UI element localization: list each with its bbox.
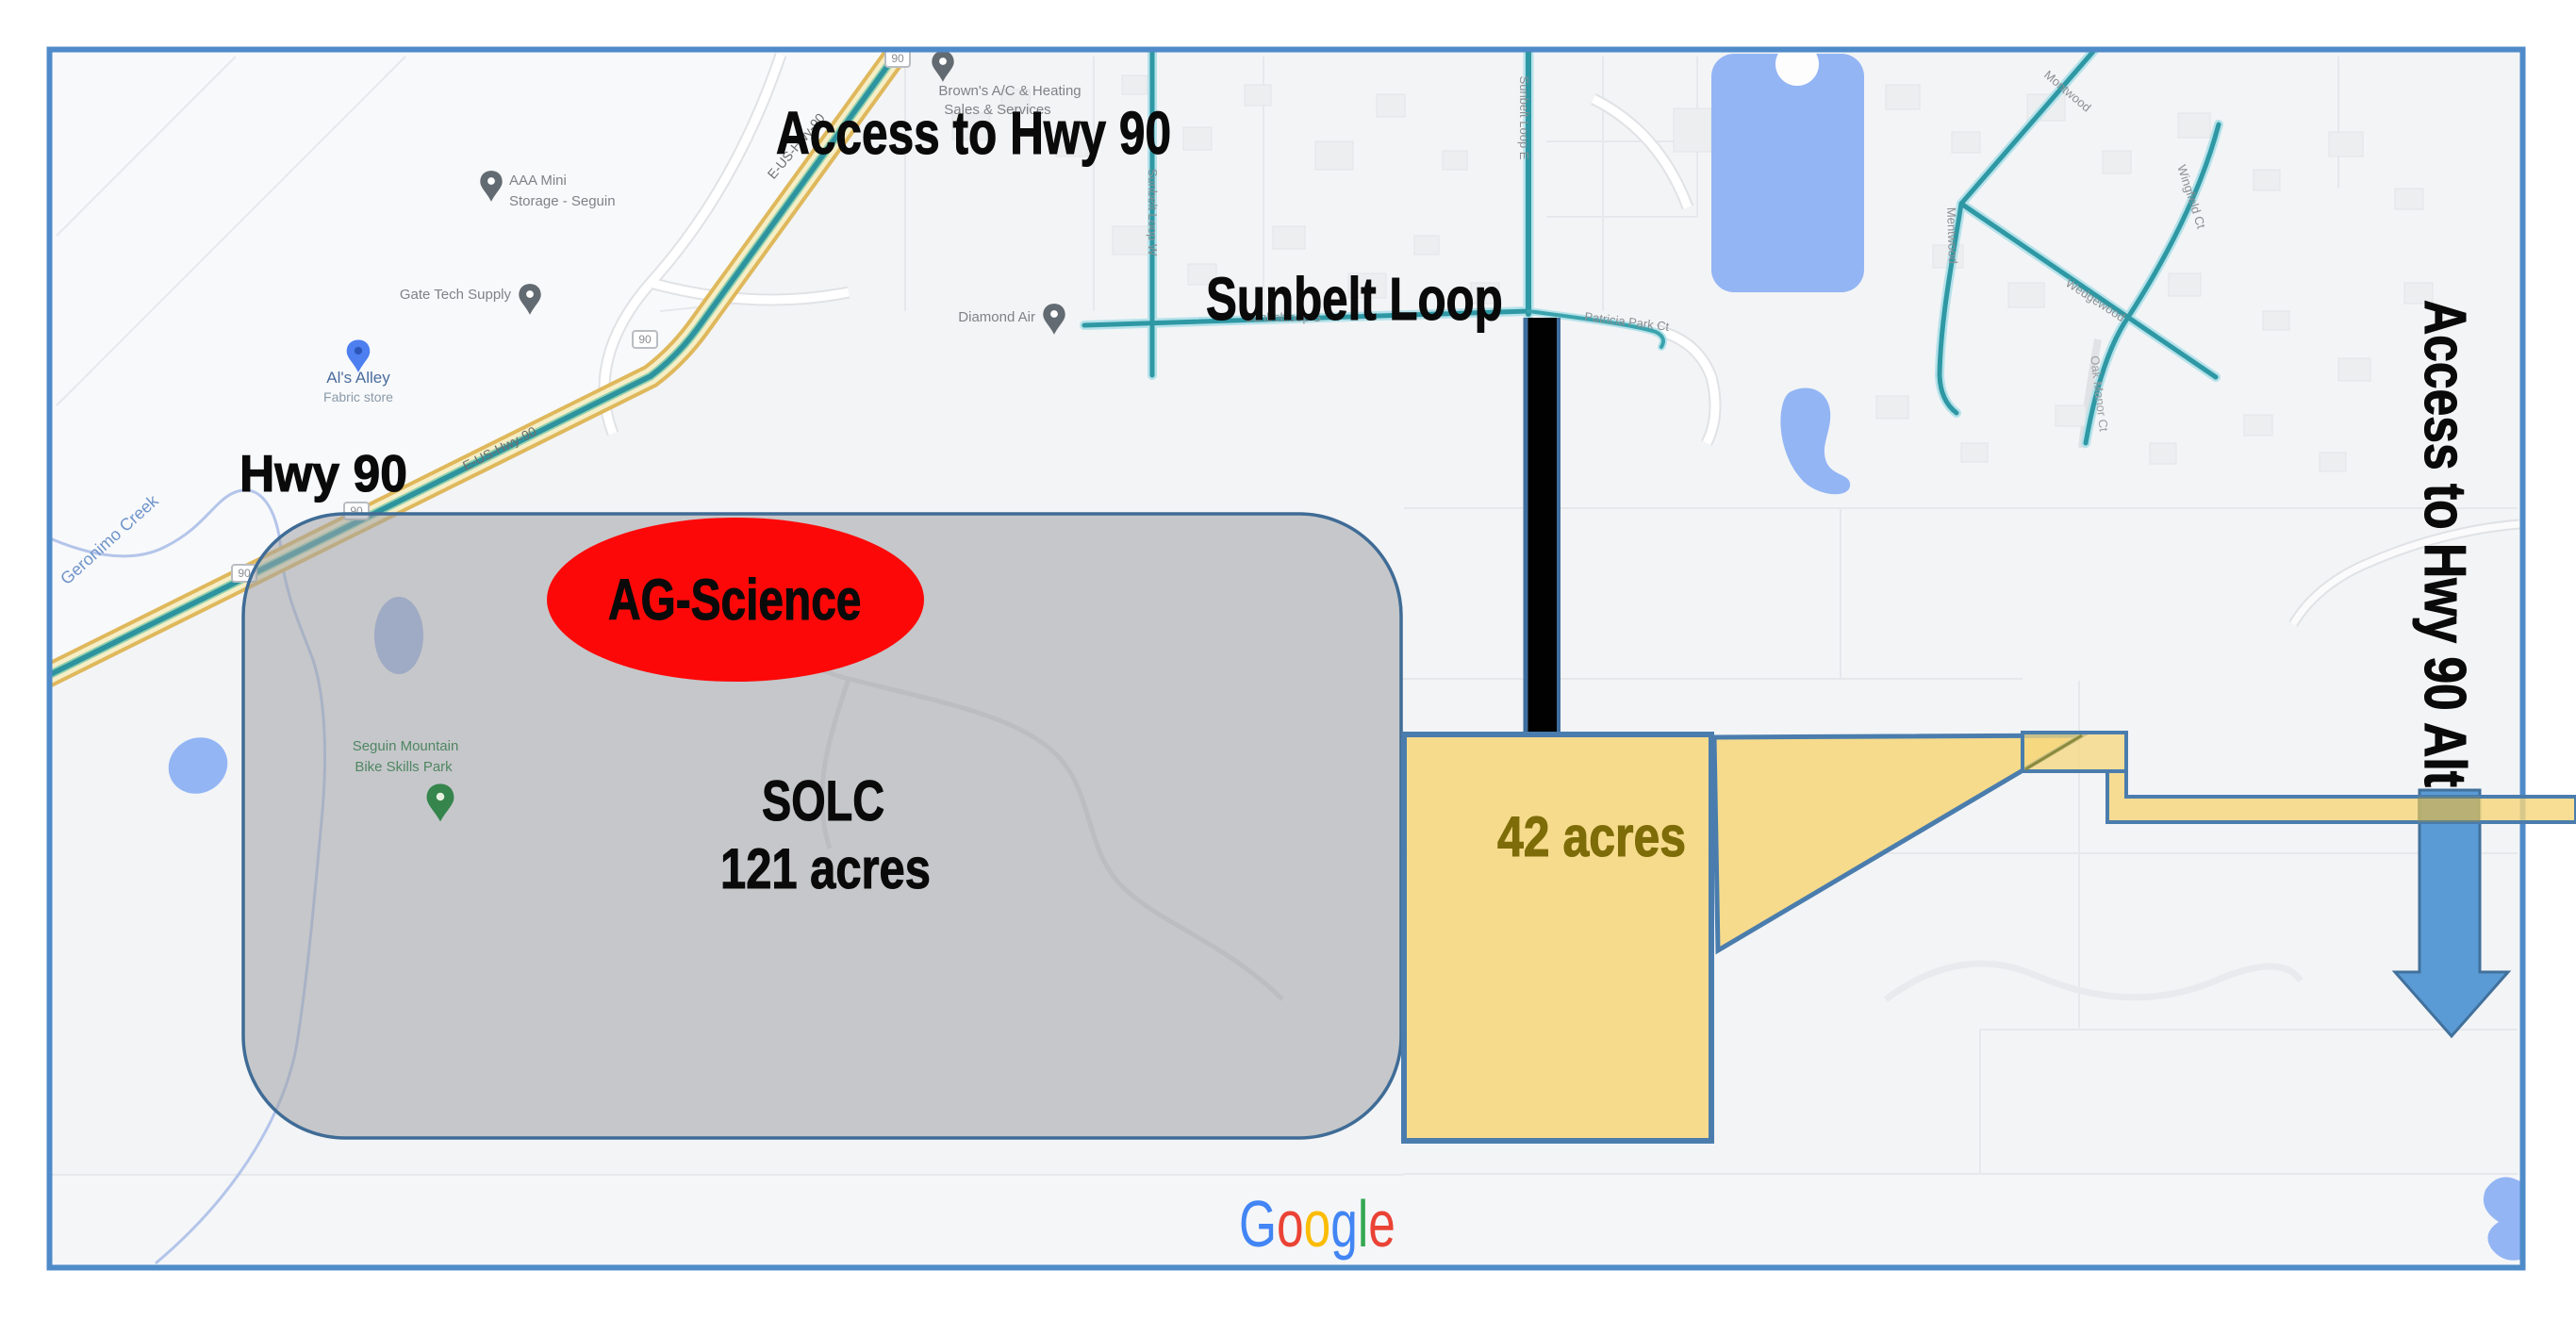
svg-text:Bike Skills Park: Bike Skills Park (355, 759, 453, 775)
svg-text:Seguin Mountain: Seguin Mountain (353, 738, 459, 754)
svg-text:Gate Tech Supply: Gate Tech Supply (400, 287, 512, 303)
svg-text:AAA Mini: AAA Mini (509, 173, 567, 189)
svg-text:Sunbelt Loop W: Sunbelt Loop W (1146, 169, 1160, 256)
svg-text:Brown's A/C & Heating: Brown's A/C & Heating (938, 83, 1081, 99)
svg-text:90: 90 (891, 52, 904, 65)
svg-text:Sunbelt Loop: Sunbelt Loop (1206, 266, 1503, 334)
svg-text:Fabric store: Fabric store (323, 389, 393, 404)
svg-text:Diamond Air: Diamond Air (958, 309, 1035, 325)
svg-text:90: 90 (638, 333, 652, 346)
svg-text:42 acres: 42 acres (1497, 805, 1686, 868)
svg-text:Access to Hwy 90 Alt: Access to Hwy 90 Alt (2412, 300, 2478, 787)
svg-text:Hwy 90: Hwy 90 (239, 446, 407, 503)
svg-text:Mentwood: Mentwood (1944, 207, 1960, 264)
svg-text:121 acres: 121 acres (720, 836, 931, 900)
svg-text:AG-Science: AG-Science (608, 567, 861, 632)
svg-text:Sunbelt Loop E: Sunbelt Loop E (1517, 76, 1531, 160)
svg-text:Access to Hwy 90: Access to Hwy 90 (776, 100, 1171, 168)
svg-text:Google: Google (1239, 1187, 1395, 1261)
svg-text:Storage - Seguin: Storage - Seguin (509, 193, 616, 209)
svg-text:Al's Alley: Al's Alley (326, 369, 390, 387)
svg-text:SOLC: SOLC (762, 769, 884, 833)
